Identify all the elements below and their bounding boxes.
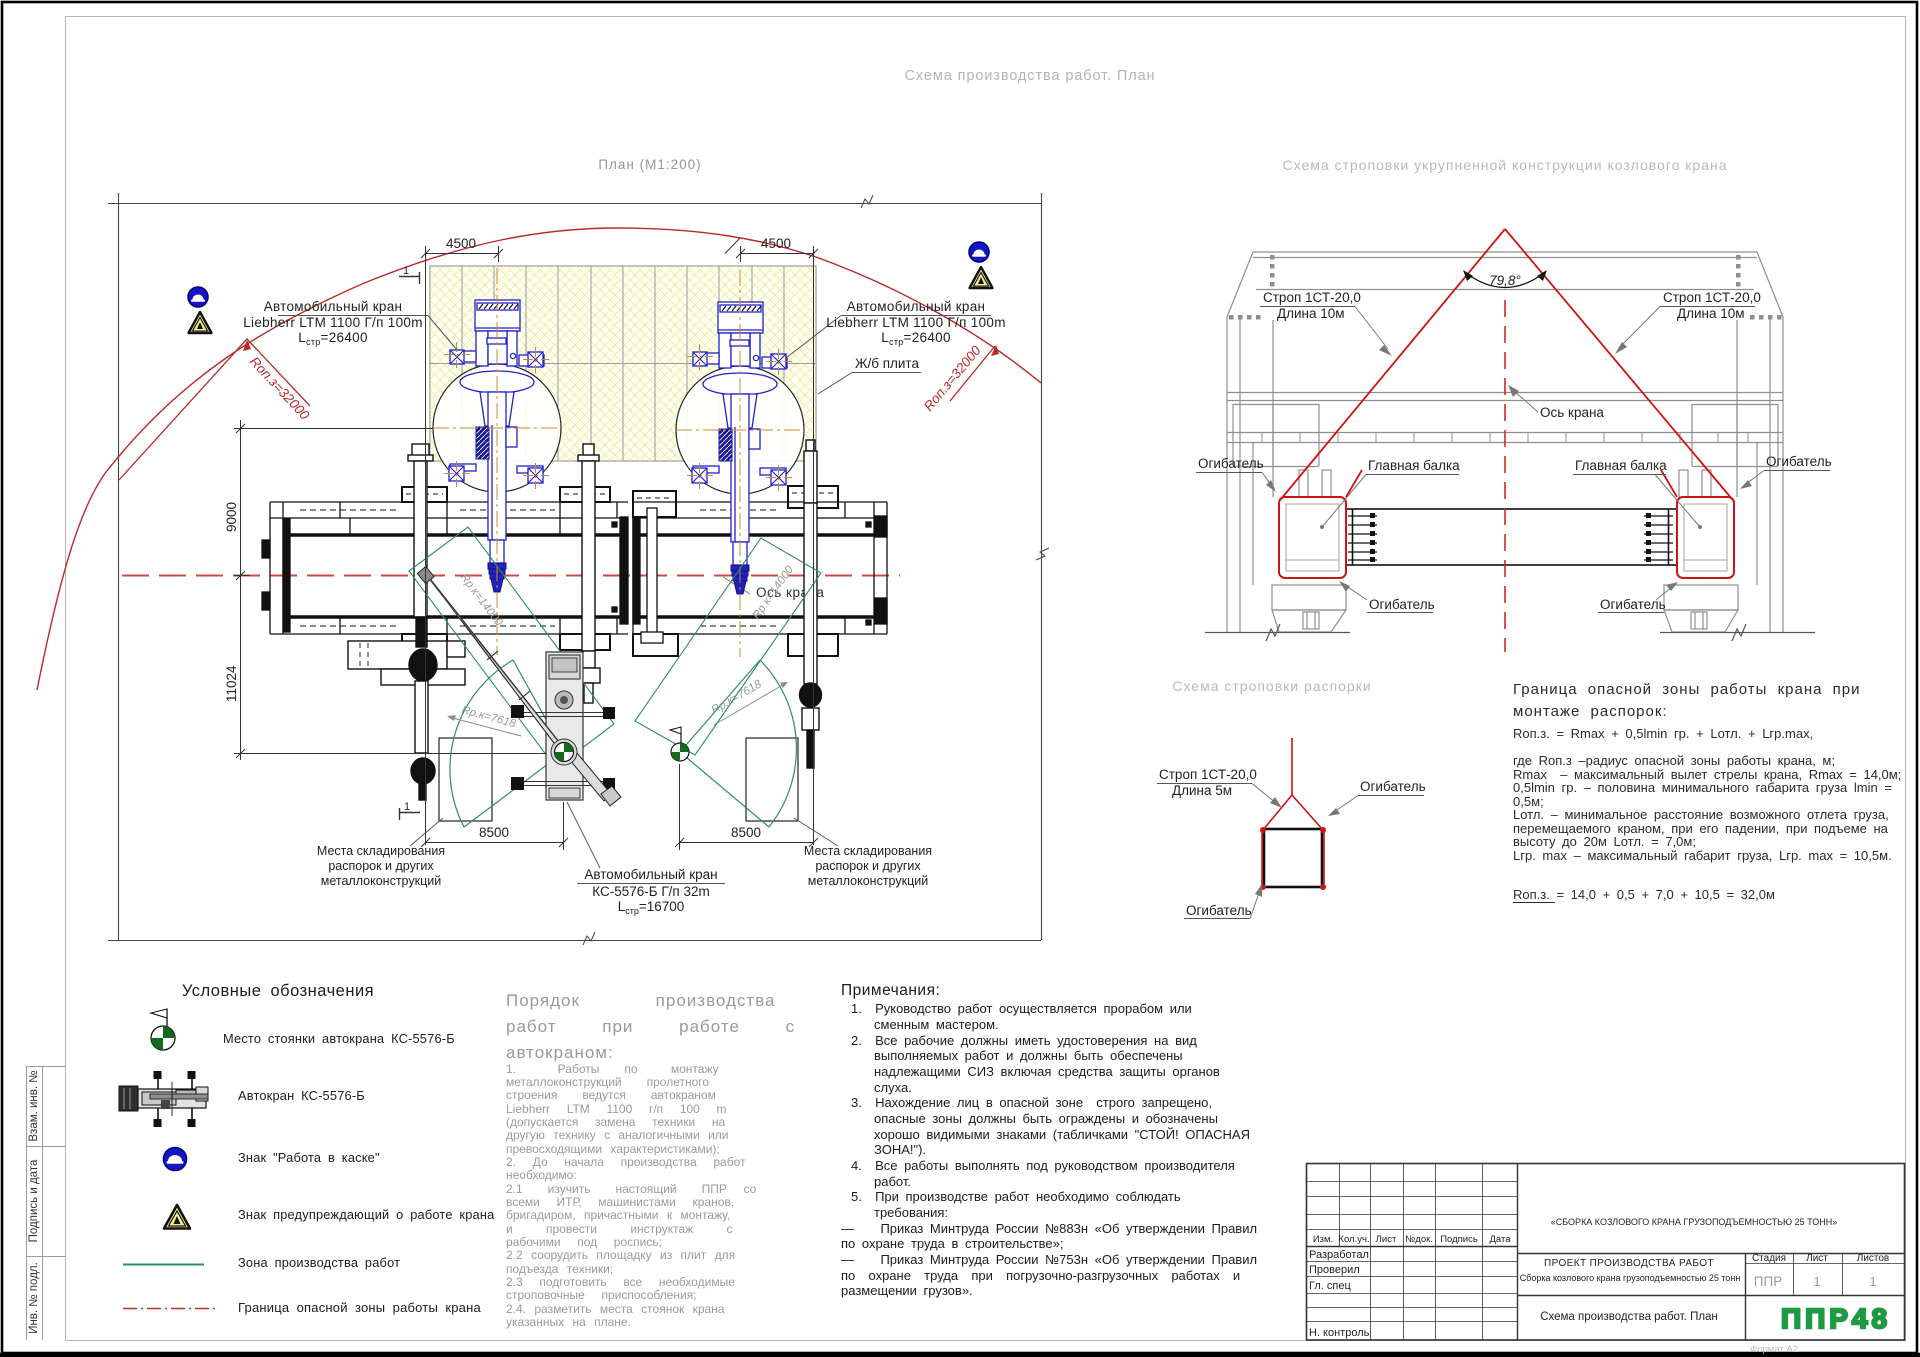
svg-text:бригадиром, причастными к монт: бригадиром, причастными к монтажу, [506,1208,730,1222]
svg-text:размещении грузов».: размещении грузов». [841,1283,973,1298]
svg-text:Проверил: Проверил [1309,1264,1360,1276]
svg-text:монтаже распорок:: монтаже распорок: [1513,703,1668,720]
svg-text:Разработал: Разработал [1309,1249,1369,1261]
svg-text:4500: 4500 [446,236,476,251]
svg-text:— Приказ Минтруда России №8: — Приказ Минтруда России №883н «Об утвер… [841,1221,1257,1236]
svg-text:металлоконструкций: металлоконструкций [321,874,441,888]
svg-text:Длина 10м: Длина 10м [1677,306,1745,321]
svg-text:Листов: Листов [1857,1253,1890,1264]
svg-text:1: 1 [1869,1274,1876,1289]
svg-text:Примечания:: Примечания: [841,982,940,999]
svg-text:рабочими под роспись;: рабочими под роспись; [506,1235,662,1249]
svg-text:Ж/б плита: Ж/б плита [855,356,919,371]
svg-text:2.3 подготовить все необход: 2.3 подготовить все необходимые [506,1275,735,1289]
svg-text:Liebherr LTM 1100 Г/п 100m: Liebherr LTM 1100 Г/п 100m [243,315,423,330]
svg-text:1: 1 [404,801,410,813]
svg-text:строения ведутся автокрано: строения ведутся автокраном [506,1088,716,1102]
svg-text:Liebherr LTM 1100 г/п 100: Liebherr LTM 1100 г/п 100 m [506,1102,727,1116]
svg-text:где Rоп.з –радиус опасной зоны: где Rоп.з –радиус опасной зоны работы кр… [1513,753,1835,768]
svg-text:требования:: требования: [874,1205,948,1220]
svg-text:Кол.уч.: Кол.уч. [1338,1234,1369,1245]
svg-text:ПРОЕКТ ПРОИЗВОДСТВА РАБОТ: ПРОЕКТ ПРОИЗВОДСТВА РАБОТ [1544,1258,1714,1269]
svg-text:высоту до 20м Lотл. = 7,0м;: высоту до 20м Lотл. = 7,0м; [1513,834,1696,849]
svg-text:Автомобильный кран: Автомобильный кран [584,867,717,882]
svg-text:металлоконструкций: металлоконструкций [808,874,928,888]
svg-text:Строп 1СТ-20,0: Строп 1СТ-20,0 [1263,290,1361,305]
svg-text:Гл. спец: Гл. спец [1309,1280,1351,1292]
svg-text:2.2 соорудить площадку из плит: 2.2 соорудить площадку из плит для [506,1248,735,1262]
svg-text:распорок и других: распорок и других [815,859,921,873]
svg-text:Порядок производства: Порядок производства [506,991,776,1010]
svg-text:Подпись: Подпись [1440,1234,1478,1245]
svg-text:Стадия: Стадия [1752,1253,1786,1264]
svg-text:4. Все работы выполнять под р: 4. Все работы выполнять под руководством… [851,1158,1235,1173]
svg-text:3. Нахождение лиц в опасной з: 3. Нахождение лиц в опасной зоне строго … [851,1095,1212,1110]
svg-text:Схема строповки укрупненной ко: Схема строповки укрупненной конструкции … [1282,157,1727,173]
svg-text:Строп 1СТ-20,0: Строп 1СТ-20,0 [1663,290,1761,305]
svg-text:№док.: №док. [1405,1234,1433,1245]
svg-text:1: 1 [1813,1274,1820,1289]
svg-text:надлежащими СИЗ включая средст: надлежащими СИЗ включая средства защиты … [874,1064,1220,1079]
svg-text:Знак "Работа в каске": Знак "Работа в каске" [238,1150,380,1165]
svg-text:Схема строповки распорки: Схема строповки распорки [1172,678,1371,694]
svg-text:Строп 1СТ-20,0: Строп 1СТ-20,0 [1159,767,1257,782]
svg-text:Lотл. – минимальное расстояние: Lотл. – минимальное расстояние возможног… [1513,807,1889,822]
svg-text:Огибатель: Огибатель [1198,456,1264,471]
svg-text:КС-5576-Б Г/п 32m: КС-5576-Б Г/п 32m [592,884,709,899]
svg-text:Место стоянки автокрана КС-557: Место стоянки автокрана КС-5576-Б [223,1031,455,1046]
svg-text:Подпись и дата: Подпись и дата [28,1159,40,1242]
svg-text:Огибатель: Огибатель [1360,779,1426,794]
svg-text:работ.: работ. [874,1174,911,1189]
svg-text:опасные зоны должны быть ограж: опасные зоны должны быть ограждены и обо… [874,1111,1218,1126]
svg-text:подъезда техники;: подъезда техники; [506,1262,613,1276]
svg-text:Лист: Лист [1806,1253,1828,1264]
svg-text:Граница опасной зоны работы кр: Граница опасной зоны работы крана [238,1300,481,1315]
svg-text:Главная балка: Главная балка [1575,458,1667,473]
svg-text:Liebherr LTM 1100 Г/п 100m: Liebherr LTM 1100 Г/п 100m [826,315,1006,330]
svg-text:хорошо видимыми знаками (табли: хорошо видимыми знаками (табличками "СТО… [874,1127,1250,1142]
svg-text:Взам. инв. №: Взам. инв. № [28,1070,40,1141]
svg-text:Н. контроль: Н. контроль [1309,1327,1370,1339]
svg-text:строповочные приспособления;: строповочные приспособления; [506,1288,697,1302]
svg-text:ППР: ППР [1754,1274,1782,1289]
svg-text:«СБОРКА КОЗЛОВОГО КРАНА ГРУЗОП: «СБОРКА КОЗЛОВОГО КРАНА ГРУЗОПОДЪЕМНОСТЬ… [1551,1217,1838,1227]
svg-text:выполняемых работ и должны быт: выполняемых работ и должны быть обеспече… [874,1048,1183,1063]
svg-text:Автомобильный кран: Автомобильный кран [847,299,986,314]
svg-text:4500: 4500 [761,236,791,251]
svg-text:11024: 11024 [224,665,239,702]
svg-text:по охране труда при погруз: по охране труда при погрузочно-разгрузоч… [841,1268,1240,1283]
svg-text:8500: 8500 [479,825,509,840]
svg-text:Лист: Лист [1376,1234,1397,1245]
svg-text:1. Работы по монтажу: 1. Работы по монтажу [506,1062,719,1076]
svg-text:1: 1 [403,265,409,277]
svg-text:8500: 8500 [731,825,761,840]
svg-text:по охране труда в строительств: по охране труда в строительстве»; [841,1236,1063,1251]
svg-text:превосходящими характеристикам: превосходящими характеристиками); [506,1142,720,1156]
svg-text:Схема производства работ. План: Схема производства работ. План [1540,1311,1718,1323]
svg-text:Огибатель: Огибатель [1369,597,1435,612]
svg-text:Lгр. mах – максимальный габари: Lгр. mах – максимальный габарит груза, L… [1513,848,1892,863]
svg-text:1. Руководство работ осуществ: 1. Руководство работ осуществляется прор… [851,1001,1192,1016]
svg-text:Формат А2: Формат А2 [1750,1344,1798,1355]
svg-text:Rоп.з. = Rmax + 0,5lmin гр. +: Rоп.з. = Rmax + 0,5lmin гр. + Lотл. + Lг… [1513,726,1813,741]
svg-text:Места складирования: Места складирования [317,844,445,858]
svg-text:79,8°: 79,8° [1489,273,1521,288]
svg-text:2.4. разметить места стоянок к: 2.4. разметить места стоянок крана [506,1302,725,1316]
svg-text:Условные обозначения: Условные обозначения [182,982,374,1000]
svg-text:Rоп.з. = 14,0 + 0,5 + 7,0 + 10: Rоп.з. = 14,0 + 0,5 + 7,0 + 10,5 = 32,0м [1513,887,1775,902]
svg-text:Длина 5м: Длина 5м [1172,783,1232,798]
svg-text:Автокран КС-5576-Б: Автокран КС-5576-Б [238,1088,365,1103]
svg-text:Главная балка: Главная балка [1368,458,1460,473]
svg-text:металлоконструкций пролетног: металлоконструкций пролетного [506,1075,709,1089]
svg-text:9000: 9000 [224,502,239,532]
svg-text:распорок и других: распорок и других [328,859,434,873]
svg-text:слуха.: слуха. [874,1080,912,1095]
svg-text:2. Все рабочие должны иметь у: 2. Все рабочие должны иметь удостоверени… [851,1033,1197,1048]
svg-text:и провести инструктаж: и провести инструктаж с [506,1222,732,1236]
svg-text:ЗОНА!").: ЗОНА!"). [874,1142,926,1157]
svg-text:Огибатель: Огибатель [1766,454,1832,469]
svg-text:2. До начала производства: 2. До начала производства работ [506,1155,746,1169]
svg-text:необходимо:: необходимо: [506,1168,577,1182]
svg-text:всеми ИТР, машинистами кран: всеми ИТР, машинистами кранов, [506,1195,734,1209]
svg-text:автокраном:: автокраном: [506,1043,614,1062]
svg-text:работ при работе с: работ при работе с [506,1017,795,1036]
svg-text:Зона производства работ: Зона производства работ [238,1255,400,1270]
svg-text:Автомобильный кран: Автомобильный кран [264,299,403,314]
svg-text:Схема производства работ. План: Схема производства работ. План [905,68,1156,84]
svg-text:5. При производстве работ нео: 5. При производстве работ необходимо соб… [851,1189,1181,1204]
svg-text:указанных на плане.: указанных на плане. [506,1315,631,1329]
svg-text:ППР48: ППР48 [1781,1303,1891,1334]
svg-text:Инв. № подл.: Инв. № подл. [28,1262,40,1334]
svg-text:План (М1:200): План (М1:200) [598,157,701,172]
svg-text:0,5lmin гр. – половина минимал: 0,5lmin гр. – половина минимального габа… [1513,780,1892,795]
svg-text:Огибатель: Огибатель [1186,903,1252,918]
svg-text:Граница опасной зоны работы кр: Граница опасной зоны работы крана при [1513,681,1860,698]
svg-text:2.1 изучить настоящий ПП: 2.1 изучить настоящий ППР со [506,1182,757,1196]
svg-text:Знак предупреждающий о работе: Знак предупреждающий о работе крана [238,1207,495,1222]
svg-text:Места складирования: Места складирования [804,844,932,858]
svg-text:Длина 10м: Длина 10м [1277,306,1345,321]
svg-text:— Приказ Минтруда России №7: — Приказ Минтруда России №753н «Об утвер… [841,1252,1257,1267]
svg-text:другую технику с аналогичными: другую технику с аналогичными или [506,1128,728,1142]
svg-text:Сборка козлового крана грузопо: Сборка козлового крана грузоподъемностью… [1520,1273,1741,1283]
svg-text:Изм.: Изм. [1313,1234,1333,1245]
svg-text:(допускается замена техники: (допускается замена техники на [506,1115,725,1129]
svg-text:Дата: Дата [1489,1234,1511,1245]
svg-text:сменным мастером.: сменным мастером. [874,1017,999,1032]
svg-text:Ось крана: Ось крана [1540,405,1604,420]
svg-text:Огибатель: Огибатель [1600,597,1666,612]
